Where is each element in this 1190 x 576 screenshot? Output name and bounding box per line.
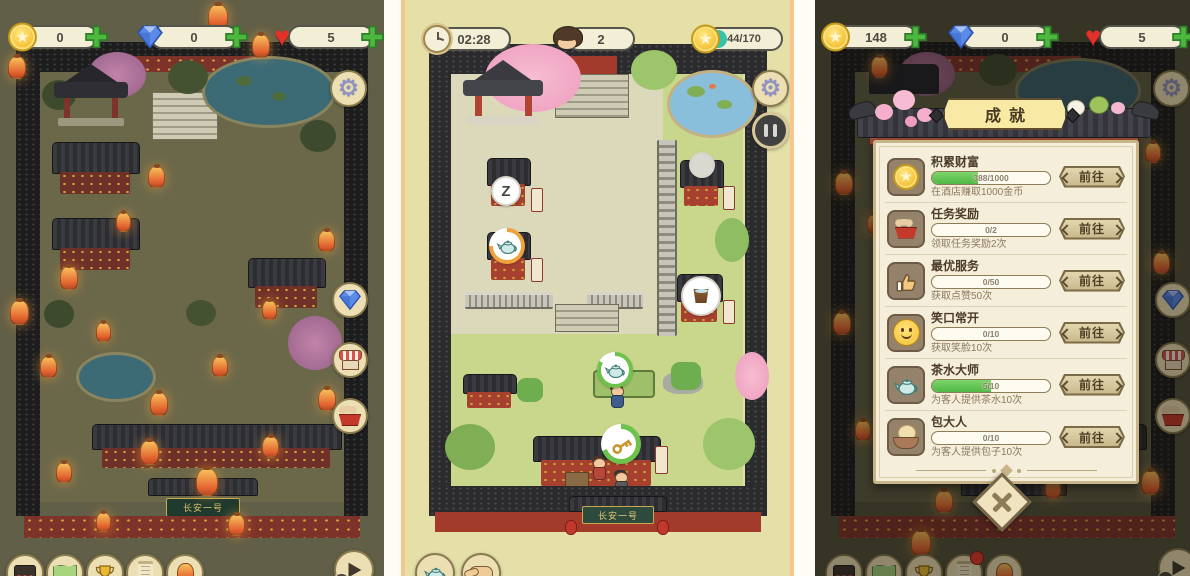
coin-counter: 148 (835, 25, 917, 49)
teapot-icon (604, 361, 626, 378)
sky-lantern (318, 230, 335, 252)
blossom-tree (735, 352, 769, 400)
sky-lantern (116, 212, 131, 232)
houses-row (92, 424, 340, 470)
diamond-value: 0 (963, 27, 1047, 47)
lantern-icon (177, 563, 194, 576)
clock-icon (423, 25, 451, 53)
trophy-button[interactable] (86, 554, 124, 576)
dialog-divider (876, 466, 1136, 475)
heart-counter: ♥ 5 (288, 25, 374, 49)
go-button[interactable]: 前往 (1059, 322, 1125, 344)
achievement-row: 茶水大师 5/10 为客人提供茶水10次 前往 (885, 359, 1127, 411)
gift-box-icon (887, 210, 925, 248)
diamond-icon (136, 24, 164, 50)
achievement-desc: 领取任务奖励2次 (931, 239, 1053, 250)
achievement-progress-bar: 0/50 (931, 275, 1051, 289)
shop-icon (339, 350, 362, 370)
sky-lantern (40, 356, 57, 378)
achievement-progress-bar: 0/10 (931, 431, 1051, 445)
shop-button[interactable] (332, 342, 368, 378)
gift-icon (339, 406, 361, 426)
scroll-icon (138, 561, 153, 576)
wall-right (344, 42, 368, 516)
achievement-progress-bar: 0/10 (931, 327, 1051, 341)
progress-text: 0/10 (932, 432, 1050, 444)
lily-pad (236, 76, 252, 86)
pause-button[interactable] (752, 112, 789, 149)
red-lantern (565, 520, 577, 535)
willow-tree (703, 418, 755, 470)
go-button[interactable]: 前往 (1059, 218, 1125, 240)
smiley-icon (887, 314, 925, 352)
achievement-name: 茶水大师 (931, 364, 1053, 377)
add-diamonds-button[interactable] (225, 26, 248, 49)
gate-sign: 长安一号 (166, 498, 240, 517)
inn-icon (14, 565, 36, 576)
sign-placard (655, 446, 668, 474)
pavilion (463, 60, 543, 126)
progress-text: 388/1000 (932, 172, 1050, 184)
map-button[interactable] (46, 554, 84, 576)
railing (657, 140, 677, 336)
heart-icon: ♥ (274, 24, 290, 51)
achievement-desc: 获取点赞50次 (931, 291, 1053, 302)
play-button[interactable]: 1 (334, 550, 374, 576)
bamboo (671, 362, 701, 390)
idle-bubble (689, 152, 715, 178)
heart-icon: ♥ (1085, 24, 1101, 51)
tree (715, 218, 749, 262)
achievement-row: 笑口常开 0/10 获取笑脸10次 前往 (885, 307, 1127, 359)
achievement-row: 任务奖励 0/2 领取任务奖励2次 前往 (885, 203, 1127, 255)
diamond-shop-button[interactable] (332, 282, 368, 318)
achievement-name: 笑口常开 (931, 312, 1053, 325)
achievement-progress-bar: 5/10 (931, 379, 1051, 393)
building (248, 258, 324, 310)
thumbs-up-icon (887, 262, 925, 300)
pavilion (54, 64, 128, 126)
waiter-character (609, 386, 624, 407)
settings-button[interactable]: ⚙ (752, 70, 789, 107)
screenshot-triptych: 长安一号 0 0 ♥ (0, 0, 1190, 576)
settings-button[interactable]: ⚙ (330, 70, 367, 107)
guest-icon (553, 26, 581, 52)
lily-pad (687, 86, 705, 97)
water-bubble[interactable] (681, 276, 721, 316)
sign-placard (723, 300, 735, 324)
sky-lantern (262, 436, 279, 458)
timer-pill: 02:28 (437, 27, 511, 51)
red-lantern (657, 520, 669, 535)
sleep-bubble: Z (491, 176, 521, 206)
sign-placard (723, 186, 735, 210)
sky-lantern (10, 300, 29, 325)
tree (44, 300, 74, 328)
progress-text: 5/10 (932, 380, 1050, 392)
gate-sign: 长安一号 (582, 506, 654, 524)
small-pond (76, 352, 156, 402)
diamond-value: 0 (152, 27, 236, 47)
brewing-bubble[interactable] (597, 352, 633, 388)
achievement-name: 最优服务 (931, 260, 1053, 273)
diamond-counter: 0 (961, 25, 1049, 49)
achievement-progress-bar: 388/1000 (931, 171, 1051, 185)
lily-pad (272, 92, 286, 101)
coin-icon (821, 23, 850, 52)
koi-fish (709, 84, 716, 89)
tea-action-button[interactable] (415, 553, 455, 576)
teapot-icon (423, 564, 447, 576)
key-icon (605, 429, 636, 459)
achievement-list: 积累财富 388/1000 在酒店赚取1000金币 前往 任务奖励 (885, 151, 1127, 463)
achievement-name: 包大人 (931, 416, 1053, 429)
coin-counter: 0 (22, 25, 98, 49)
building (52, 142, 138, 196)
wall-left (16, 42, 40, 516)
add-coins-button[interactable] (85, 26, 108, 49)
sky-lantern (228, 514, 245, 536)
guest-pill: 2 (567, 27, 635, 51)
teapot-icon (887, 366, 925, 404)
add-hearts-button[interactable] (1172, 26, 1190, 49)
heart-value: 5 (290, 27, 372, 47)
add-coins-button[interactable] (904, 26, 927, 49)
progress-text: 0/50 (932, 276, 1050, 288)
sign-placard (531, 188, 543, 212)
achievement-desc: 在酒店赚取1000金币 (931, 187, 1053, 198)
gift-button[interactable] (332, 398, 368, 434)
gear-icon: ⚙ (760, 77, 782, 101)
pond (202, 56, 336, 128)
heart-counter: ♥ 5 (1099, 25, 1185, 49)
willow-tree (168, 60, 208, 94)
hostess-character (591, 458, 606, 479)
sky-lantern (56, 462, 72, 483)
go-button[interactable]: 前往 (1059, 426, 1125, 448)
bun-icon (887, 418, 925, 456)
diamond-icon (947, 24, 975, 50)
tree (186, 300, 216, 326)
lily-pad (717, 100, 732, 109)
achievement-row: 积累财富 388/1000 在酒店赚取1000金币 前往 (885, 151, 1127, 203)
hand-icon (469, 566, 493, 576)
willow-tree (631, 50, 677, 90)
heart-value: 5 (1101, 27, 1183, 47)
achievements-dialog: 积累财富 388/1000 在酒店赚取1000金币 前往 任务奖励 (873, 140, 1139, 484)
achievement-row: 最优服务 0/50 获取点赞50次 前往 (885, 255, 1127, 307)
sky-lantern (196, 468, 218, 496)
add-hearts-button[interactable] (361, 26, 384, 49)
building (463, 374, 515, 410)
gear-icon: ⚙ (338, 77, 360, 101)
serve-action-button[interactable] (461, 553, 501, 576)
screen-achievements: ⚙ 4 148 0 ♥ 5 (815, 0, 1190, 576)
pause-icon (764, 124, 768, 137)
screen-night-map: 长安一号 0 0 ♥ (0, 0, 384, 576)
dialog-title: 成就 (943, 98, 1067, 130)
screen-day-game: Z (401, 0, 794, 576)
sky-lantern (60, 266, 78, 290)
achievement-row: 包大人 0/10 为客人提供包子10次 前往 (885, 411, 1127, 463)
achievement-progress-bar: 0/2 (931, 223, 1051, 237)
coin-icon (887, 158, 925, 196)
sky-lantern (8, 56, 26, 79)
inn-button[interactable] (6, 554, 44, 576)
sky-lantern (252, 34, 270, 58)
stone-stairs (555, 304, 619, 332)
sky-lantern (140, 440, 159, 465)
map-icon (53, 565, 77, 576)
tea-progress-bubble[interactable] (489, 228, 525, 264)
diamond-counter: 0 (150, 25, 238, 49)
diamond-icon (338, 289, 362, 311)
play-icon (343, 559, 365, 576)
tree (300, 120, 336, 152)
trophy-icon (93, 563, 117, 576)
scroll-button[interactable] (126, 554, 164, 576)
coin-icon (691, 25, 720, 54)
lantern-button[interactable] (166, 554, 204, 576)
potted-plant (517, 378, 543, 402)
key-bubble[interactable] (601, 424, 641, 464)
progress-text: 0/2 (932, 224, 1050, 236)
go-button[interactable]: 前往 (1059, 270, 1125, 292)
progress-text: 0/10 (932, 328, 1050, 340)
achievement-name: 任务奖励 (931, 208, 1053, 221)
achievement-desc: 为客人提供包子10次 (931, 447, 1053, 458)
sign-placard (531, 258, 543, 282)
go-button[interactable]: 前往 (1059, 374, 1125, 396)
sky-lantern (212, 356, 228, 377)
achievement-desc: 获取笑脸10次 (931, 343, 1053, 354)
add-diamonds-button[interactable] (1036, 26, 1059, 49)
achievement-desc: 为客人提供茶水10次 (931, 395, 1053, 406)
sky-lantern (96, 322, 111, 342)
coin-icon (8, 23, 37, 52)
coin-goal-pill: 44/170 (705, 27, 783, 51)
bucket-icon (693, 289, 710, 303)
achievement-name: 积累财富 (931, 156, 1053, 169)
sky-lantern (262, 300, 277, 320)
pond (667, 70, 757, 138)
go-button[interactable]: 前往 (1059, 166, 1125, 188)
sky-lantern (148, 166, 165, 188)
fence (465, 292, 553, 309)
sky-lantern (150, 392, 168, 416)
sky-lantern (96, 512, 111, 532)
wall-bottom-red (24, 516, 360, 538)
teapot-icon (496, 237, 518, 254)
tree (445, 424, 495, 470)
